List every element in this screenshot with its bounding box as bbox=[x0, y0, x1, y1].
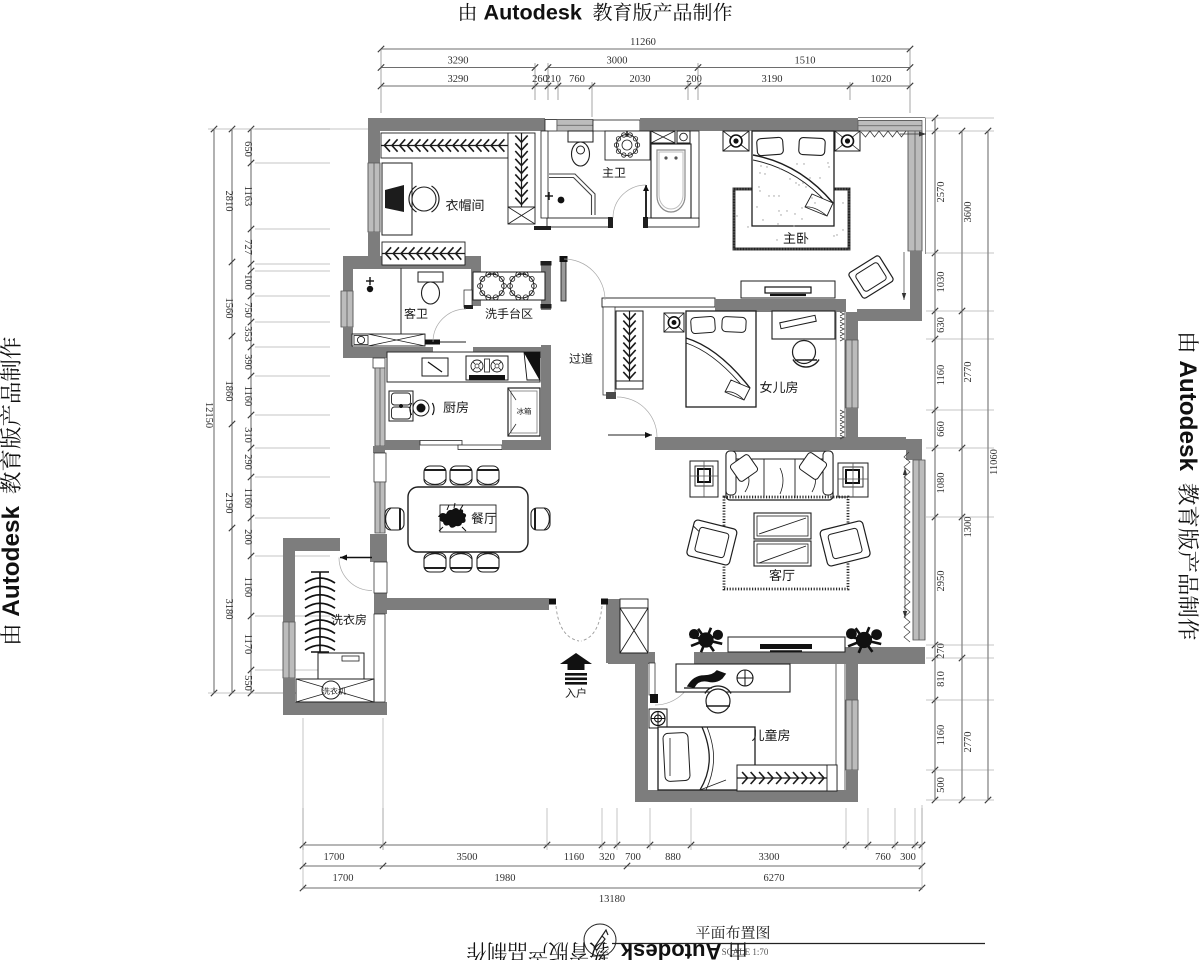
svg-text:1300: 1300 bbox=[963, 517, 974, 538]
svg-text:Autodesk: Autodesk bbox=[484, 0, 583, 25]
svg-text:700: 700 bbox=[625, 852, 641, 863]
svg-text:3000: 3000 bbox=[607, 56, 628, 67]
svg-text:Autodesk: Autodesk bbox=[1174, 360, 1200, 471]
svg-text:500: 500 bbox=[936, 777, 947, 793]
svg-text:2950: 2950 bbox=[936, 571, 947, 592]
svg-text:Autodesk: Autodesk bbox=[0, 506, 25, 617]
svg-text:880: 880 bbox=[665, 852, 681, 863]
svg-text:2810: 2810 bbox=[223, 191, 234, 212]
svg-text:3600: 3600 bbox=[963, 202, 974, 223]
svg-text:Autodesk: Autodesk bbox=[620, 939, 721, 960]
svg-text:727: 727 bbox=[242, 239, 253, 255]
svg-text:1160: 1160 bbox=[242, 488, 253, 509]
svg-text:2190: 2190 bbox=[223, 493, 234, 514]
svg-text:810: 810 bbox=[936, 671, 947, 687]
svg-text:310: 310 bbox=[242, 427, 253, 443]
svg-text:210: 210 bbox=[545, 74, 561, 85]
svg-text:3180: 3180 bbox=[223, 599, 234, 620]
svg-text:1163: 1163 bbox=[242, 186, 253, 207]
svg-text:100: 100 bbox=[242, 274, 253, 290]
svg-text:270: 270 bbox=[936, 643, 947, 659]
svg-text:1160: 1160 bbox=[936, 725, 947, 746]
svg-text:6270: 6270 bbox=[764, 873, 785, 884]
svg-text:1030: 1030 bbox=[936, 272, 947, 293]
svg-text:1080: 1080 bbox=[936, 473, 947, 494]
svg-text:3190: 3190 bbox=[762, 74, 783, 85]
svg-text:1700: 1700 bbox=[333, 873, 354, 884]
svg-text:2770: 2770 bbox=[963, 732, 974, 753]
svg-text:12150: 12150 bbox=[203, 402, 214, 428]
svg-text:2030: 2030 bbox=[630, 74, 651, 85]
svg-text:11260: 11260 bbox=[630, 37, 656, 48]
svg-text:1510: 1510 bbox=[795, 56, 816, 67]
svg-text:353: 353 bbox=[242, 326, 253, 342]
svg-text:1980: 1980 bbox=[495, 873, 516, 884]
svg-text:1020: 1020 bbox=[871, 74, 892, 85]
svg-text:660: 660 bbox=[936, 421, 947, 437]
svg-text:3290: 3290 bbox=[448, 74, 469, 85]
svg-text:290: 290 bbox=[242, 454, 253, 470]
svg-text:320: 320 bbox=[599, 852, 615, 863]
svg-text:3300: 3300 bbox=[759, 852, 780, 863]
svg-text:1160: 1160 bbox=[242, 577, 253, 598]
svg-text:1700: 1700 bbox=[324, 852, 345, 863]
svg-text:1160: 1160 bbox=[242, 386, 253, 407]
svg-text:650: 650 bbox=[242, 141, 253, 157]
svg-text:750: 750 bbox=[242, 302, 253, 318]
svg-text:630: 630 bbox=[936, 317, 947, 333]
svg-text:SCALE 1:70: SCALE 1:70 bbox=[722, 947, 769, 957]
svg-text:1860: 1860 bbox=[223, 381, 234, 402]
svg-text:390: 390 bbox=[242, 354, 253, 370]
svg-text:2770: 2770 bbox=[963, 362, 974, 383]
svg-text:3500: 3500 bbox=[457, 852, 478, 863]
svg-text:3290: 3290 bbox=[448, 56, 469, 67]
svg-text:1160: 1160 bbox=[936, 365, 947, 386]
svg-text:760: 760 bbox=[875, 852, 891, 863]
svg-text:760: 760 bbox=[569, 74, 585, 85]
svg-text:11060: 11060 bbox=[989, 449, 1000, 475]
svg-text:200: 200 bbox=[686, 74, 702, 85]
svg-text:2570: 2570 bbox=[936, 182, 947, 203]
svg-text:1160: 1160 bbox=[564, 852, 585, 863]
svg-text:1560: 1560 bbox=[223, 298, 234, 319]
svg-text:550: 550 bbox=[242, 675, 253, 691]
svg-text:200: 200 bbox=[242, 529, 253, 545]
svg-text:300: 300 bbox=[900, 852, 916, 863]
svg-text:1170: 1170 bbox=[242, 634, 253, 655]
svg-text:13180: 13180 bbox=[599, 894, 625, 905]
